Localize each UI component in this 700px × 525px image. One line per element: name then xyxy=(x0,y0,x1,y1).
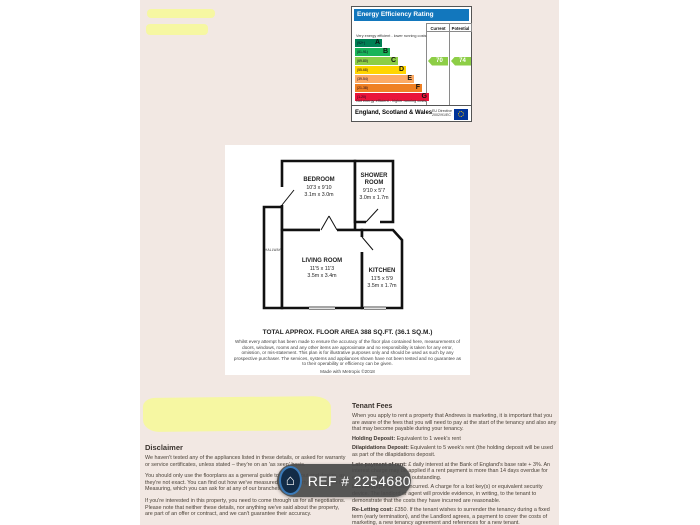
floorplan-fine-print: Whilst every attempt has been made to en… xyxy=(234,339,462,367)
kitchen-metric: 3.5m x 1.7m xyxy=(367,283,397,289)
epc-current-rating-marker: 70 xyxy=(428,57,448,66)
fee-label: Re-Letting cost: xyxy=(352,507,393,513)
living-label: LIVING ROOM xyxy=(302,258,342,264)
epc-current-header: Current xyxy=(426,23,450,32)
epc-band-f: (21-38) F xyxy=(355,84,422,92)
epc-potential-header: Potential xyxy=(449,23,472,32)
epc-band-d-range: (55-68) xyxy=(357,68,368,72)
epc-band-b: (81-91) B xyxy=(355,48,390,56)
house-icon: ⌂ xyxy=(279,466,302,495)
reference-badge: ⌂ REF # 2254680 xyxy=(277,464,411,497)
epc-band-e-letter: E xyxy=(407,75,412,83)
epc-band-d: (55-68) D xyxy=(355,66,406,74)
floorplan-drawing: BEDROOM 10'3 x 9'10 3.1m x 3.0m SHOWER R… xyxy=(225,145,470,317)
epc-region-label: England, Scotland & Wales xyxy=(355,110,432,116)
fee-text: Equivalent to 1 week's rent xyxy=(395,436,461,442)
kitchen-label: KITCHEN xyxy=(369,268,396,274)
tenant-fees-intro: When you apply to rent a property that A… xyxy=(352,413,559,433)
epc-eu-directive-line2: 2002/91/EC xyxy=(432,113,452,117)
disclaimer-paragraph: If you're interested in this property, y… xyxy=(145,498,347,518)
epc-eu-directive: EU Directive 2002/91/EC xyxy=(432,109,452,118)
floorplan-credit: Made with Metropix ©2018 xyxy=(225,369,470,374)
epc-band-c-letter: C xyxy=(391,57,396,65)
tenant-fee-item: Holding Deposit: Equivalent to 1 week's … xyxy=(352,436,559,443)
shower-metric: 3.0m x 1.7m xyxy=(359,195,389,201)
epc-band-e-range: (39-54) xyxy=(357,77,368,81)
highlight-redaction-top-1 xyxy=(147,9,215,18)
fee-label: Holding Deposit: xyxy=(352,436,395,442)
tenant-fee-item: Dilapidations Deposit: Equivalent to 5 w… xyxy=(352,445,559,458)
bedroom-imperial: 10'3 x 9'10 xyxy=(306,185,331,191)
floorplan: BEDROOM 10'3 x 9'10 3.1m x 3.0m SHOWER R… xyxy=(225,145,470,375)
epc-band-c: (69-80) C xyxy=(355,57,398,65)
highlight-redaction-middle xyxy=(143,396,331,432)
epc-bottom-note: Not energy efficient - higher running co… xyxy=(356,99,426,103)
floorplan-total-area: TOTAL APPROX. FLOOR AREA 388 SQ.FT. (36.… xyxy=(225,329,470,336)
fee-label: Dilapidations Deposit: xyxy=(352,445,409,451)
bedroom-metric: 3.1m x 3.0m xyxy=(304,192,334,198)
eu-flag-icon xyxy=(454,109,468,120)
epc-band-a-letter: A xyxy=(375,39,380,47)
epc-band-a-range: (92+) xyxy=(357,41,365,45)
shower-label-1: SHOWER xyxy=(361,173,389,179)
epc-footer: England, Scotland & Wales EU Directive 2… xyxy=(352,105,471,121)
hallway-label: HALLWAY xyxy=(265,248,282,252)
disclaimer-heading: Disclaimer xyxy=(145,443,347,452)
reference-number: REF # 2254680 xyxy=(308,473,411,489)
tenant-fees-heading: Tenant Fees xyxy=(352,403,559,410)
highlight-redaction-top-2 xyxy=(146,24,208,35)
epc-band-a: (92+) A xyxy=(355,39,382,47)
epc-divider xyxy=(449,23,450,105)
epc-band-b-letter: B xyxy=(383,48,388,56)
kitchen-imperial: 11'5 x 5'9 xyxy=(371,276,393,282)
hallway-room xyxy=(264,207,282,308)
epc-band-c-range: (69-80) xyxy=(357,59,368,63)
shower-imperial: 9'10 x 5'7 xyxy=(363,188,385,194)
property-details-page: Energy Efficiency Rating Current Potenti… xyxy=(0,0,700,525)
epc-band-b-range: (81-91) xyxy=(357,50,368,54)
shower-label-2: ROOM xyxy=(365,180,384,186)
living-metric: 3.5m x 3.4m xyxy=(307,273,337,279)
epc-potential-rating-marker: 74 xyxy=(451,57,471,66)
epc-band-f-range: (21-38) xyxy=(357,86,368,90)
tenant-fee-item: Re-Letting cost: £350. If the tenant wis… xyxy=(352,507,559,525)
energy-efficiency-chart: Energy Efficiency Rating Current Potenti… xyxy=(351,6,472,122)
epc-band-e: (39-54) E xyxy=(355,75,414,83)
epc-band-d-letter: D xyxy=(399,66,404,74)
epc-title: Energy Efficiency Rating xyxy=(354,9,469,21)
epc-band-f-letter: F xyxy=(416,84,420,92)
living-imperial: 11'5 x 11'3 xyxy=(310,266,335,272)
bedroom-label: BEDROOM xyxy=(303,177,334,183)
epc-top-note: Very energy efficient - lower running co… xyxy=(356,34,426,38)
